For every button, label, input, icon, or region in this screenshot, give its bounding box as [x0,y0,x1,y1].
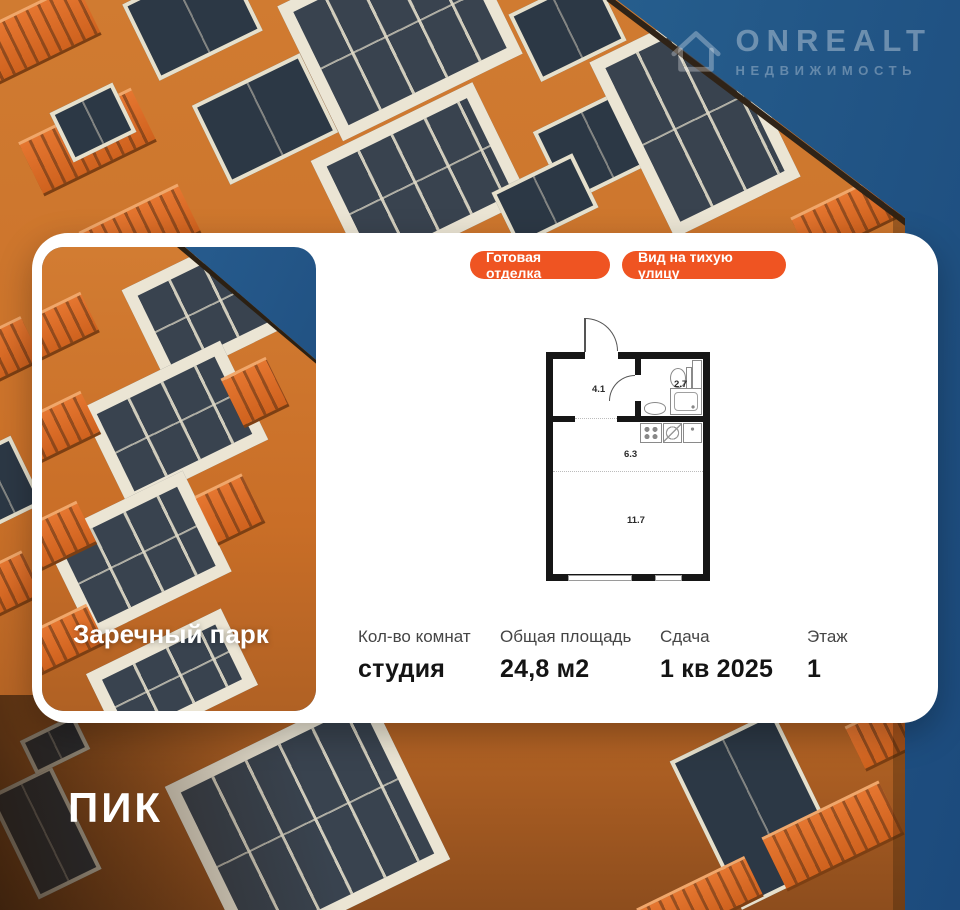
kitchen-sink-icon [663,423,682,443]
balcony [42,292,100,368]
balcony [0,0,102,87]
plan-wall [617,416,703,422]
project-photo: Заречный парк [42,247,316,711]
security-camera [872,146,896,160]
camera-arm [872,152,887,157]
stat-value: 24,8 м2 [500,655,650,684]
plan-wall [553,416,575,422]
sink-icon [644,402,666,415]
developer-logo: ПИК [68,784,163,832]
room-area-hallway: 4.1 [592,384,605,395]
badge-view: Вид на тихую улицу [622,251,786,279]
shower-icon [670,388,702,415]
plan-dashed-line [553,471,703,472]
plan-dashed-line [575,418,617,419]
facade-shadow [0,695,430,910]
watermark-brand: ONREALT [735,24,932,58]
stat-floor: Этаж 1 [807,627,957,684]
bathroom-shaft-icon [692,360,702,390]
onrealt-house-icon [667,24,725,76]
balcony [636,856,764,910]
listing-promo-image: ONREALT НЕДВИЖИМОСТЬ ПИК Заречный парк Г… [0,0,960,910]
shower-tray [674,392,698,411]
plan-wall [635,359,641,375]
stat-rooms: Кол-во комнат студия [358,627,508,684]
entrance-door-arc [585,318,618,351]
bathroom-door-arc [609,375,635,401]
plan-window [568,575,632,581]
stat-delivery: Сдача 1 кв 2025 [660,627,810,684]
plan-wall [546,352,553,581]
stat-total-area: Общая площадь 24,8 м2 [500,627,650,684]
room-area-kitchen: 6.3 [624,449,637,460]
floorplan: 4.1 2.7 6.3 11.7 [546,352,710,581]
stat-label: Общая площадь [500,627,650,647]
stat-label: Этаж [807,627,957,647]
stat-value: 1 кв 2025 [660,655,810,684]
watermark: ONREALT НЕДВИЖИМОСТЬ [667,24,932,78]
entrance-door-leaf [584,318,586,352]
plan-wall [618,352,710,359]
badge-finish: Готовая отделка [470,251,610,279]
stat-label: Кол-во комнат [358,627,508,647]
plan-wall [635,401,641,417]
plan-window [655,575,682,581]
room-area-living: 11.7 [627,515,645,526]
room-area-bathroom: 2.7 [674,379,687,390]
plan-wall [703,352,710,581]
project-name: Заречный парк [73,619,269,650]
watermark-subtitle: НЕДВИЖИМОСТЬ [735,63,932,78]
stove-icon [640,423,662,443]
listing-card[interactable]: Заречный парк Готовая отделка Вид на тих… [32,233,938,723]
stat-value: студия [358,655,508,684]
stat-label: Сдача [660,627,810,647]
window [122,0,263,81]
camera-head [885,147,894,156]
stat-value: 1 [807,655,957,684]
fridge-icon [683,423,702,443]
